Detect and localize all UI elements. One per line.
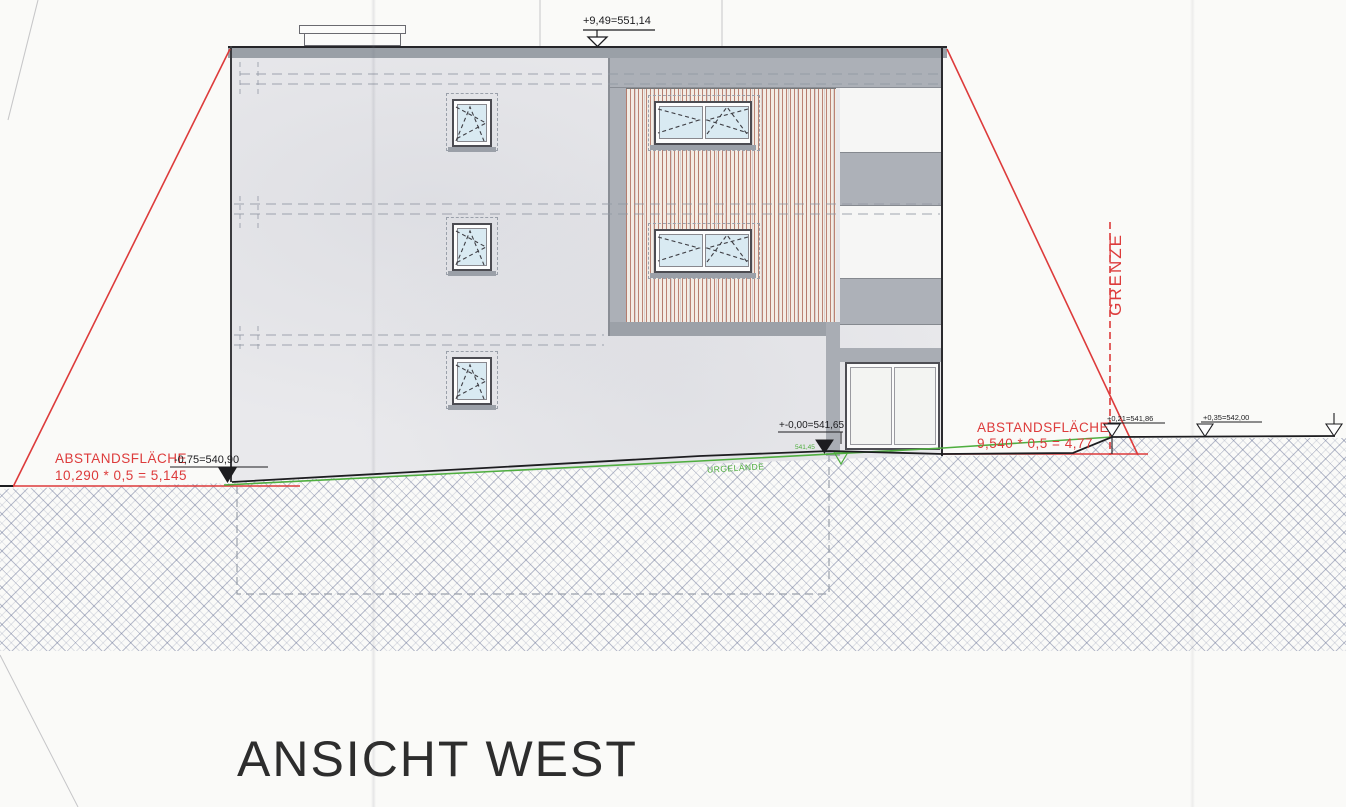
window-sill	[650, 145, 756, 150]
window-sill	[448, 405, 496, 410]
door-glass	[894, 367, 936, 445]
window-glass	[659, 234, 703, 267]
window-wide	[654, 229, 752, 273]
window-sill	[448, 271, 496, 276]
drawing-title: ANSICHT WEST	[237, 730, 638, 788]
roof-level-label: +9,49=551,14	[583, 15, 651, 27]
paper-fold	[1190, 0, 1195, 807]
window-glass	[705, 234, 749, 267]
paper-fold	[371, 0, 376, 807]
right-setback-calc: 9,540 * 0,5 = 4,77	[977, 436, 1093, 451]
window	[452, 99, 492, 147]
terrain-spot-level: 541,45	[795, 444, 815, 451]
boundary-spot-level-1: +0,21=541,86	[1107, 414, 1153, 423]
left-setback-label: ABSTANDSFLÄCHE	[55, 451, 187, 466]
window	[452, 357, 492, 405]
window-glass	[457, 362, 487, 400]
window-sill	[448, 147, 496, 152]
right-setback-label: ABSTANDSFLÄCHE	[977, 420, 1109, 435]
left-setback-calc: 10,290 * 0,5 = 5,145	[55, 468, 187, 483]
elevation-drawing-sheet: +9,49=551,14 ABSTANDSFLÄCHE 10,290 * 0,5…	[0, 0, 1346, 807]
roof-structure	[304, 33, 401, 46]
left-ground-level-label: -0,75=540,90	[174, 454, 239, 466]
building-left-edge	[230, 46, 232, 482]
door-lintel	[840, 348, 942, 362]
boundary-label: GRENZE	[1106, 233, 1126, 316]
roof-parapet	[228, 46, 947, 58]
right-facade-left-strip	[610, 88, 626, 336]
window-glass	[457, 104, 487, 142]
window-wide	[654, 101, 752, 145]
patio-door	[845, 362, 940, 450]
building-right-edge	[941, 46, 943, 456]
right-facade-top-band	[610, 58, 943, 88]
zero-level-label: +-0,00=541,65	[779, 420, 844, 431]
window-glass	[705, 106, 749, 139]
door-glass	[850, 367, 892, 445]
balcony-parapet-band	[840, 278, 943, 325]
window-glass	[659, 106, 703, 139]
balcony-parapet-band	[840, 152, 943, 206]
boundary-spot-level-2: +0,35=542,00	[1203, 413, 1249, 422]
right-facade-bottom-band	[610, 322, 840, 336]
ground-floor-pillar	[826, 322, 840, 456]
window	[452, 223, 492, 271]
window-sill	[650, 273, 756, 278]
window-glass	[457, 228, 487, 266]
